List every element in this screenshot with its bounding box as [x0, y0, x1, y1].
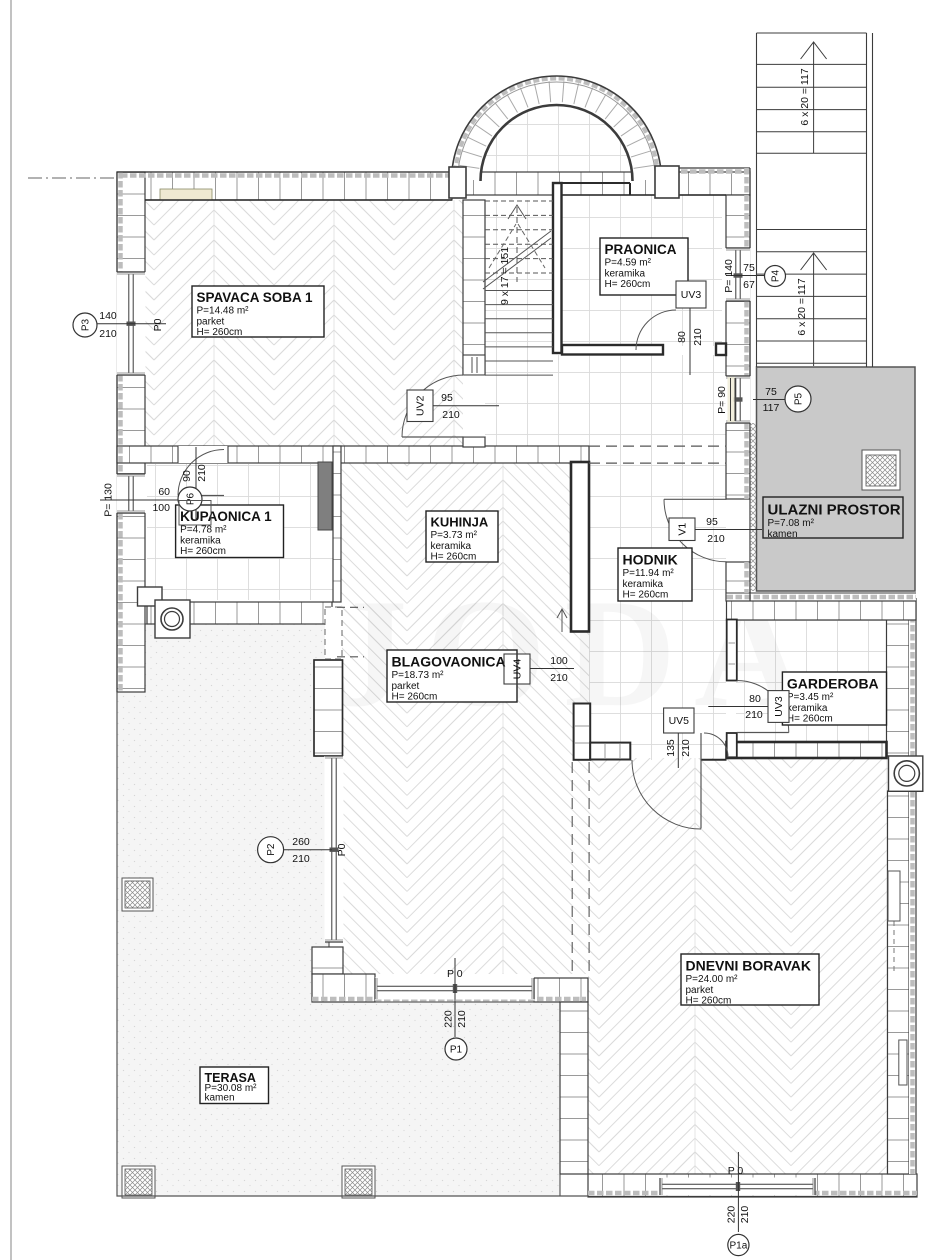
- svg-text:P=18.73 m²: P=18.73 m²: [392, 670, 445, 681]
- svg-text:6 x 20 = 117: 6 x 20 = 117: [796, 278, 808, 335]
- svg-text:P3: P3: [81, 318, 92, 331]
- svg-text:parket: parket: [197, 316, 225, 327]
- svg-text:keramika: keramika: [605, 268, 646, 279]
- svg-text:95: 95: [706, 516, 718, 528]
- svg-text:75: 75: [765, 386, 777, 398]
- svg-text:P=3.45 m²: P=3.45 m²: [787, 692, 834, 703]
- svg-text:67: 67: [743, 279, 755, 291]
- svg-text:SPAVACA SOBA 1: SPAVACA SOBA 1: [197, 290, 314, 305]
- svg-text:P=4.59 m²: P=4.59 m²: [605, 258, 652, 269]
- svg-text:P2: P2: [266, 843, 277, 856]
- svg-text:kamen: kamen: [768, 529, 798, 540]
- svg-text:9 x 17 = 151: 9 x 17 = 151: [499, 247, 511, 305]
- svg-text:UV5: UV5: [669, 715, 690, 727]
- svg-text:P= 130: P= 130: [103, 483, 115, 517]
- svg-text:keramika: keramika: [623, 579, 664, 590]
- svg-text:H= 260cm: H= 260cm: [623, 590, 669, 601]
- svg-text:210: 210: [680, 739, 692, 757]
- svg-text:UV3: UV3: [681, 289, 702, 301]
- svg-text:BLAGOVAONICA: BLAGOVAONICA: [392, 654, 506, 670]
- svg-text:H= 260cm: H= 260cm: [197, 327, 243, 338]
- svg-text:6 x 20 = 117: 6 x 20 = 117: [799, 68, 811, 125]
- svg-text:210: 210: [292, 853, 310, 865]
- svg-text:kamen: kamen: [205, 1092, 235, 1103]
- svg-text:P5: P5: [794, 392, 805, 405]
- svg-text:260: 260: [292, 836, 310, 848]
- svg-text:parket: parket: [686, 985, 714, 996]
- svg-text:100: 100: [152, 502, 170, 514]
- svg-text:P=14.48 m²: P=14.48 m²: [197, 306, 250, 317]
- svg-text:DNEVNI BORAVAK: DNEVNI BORAVAK: [686, 958, 812, 974]
- svg-text:P= 140: P= 140: [723, 259, 735, 293]
- svg-text:H= 260cm: H= 260cm: [787, 714, 833, 725]
- svg-text:UV3: UV3: [773, 696, 785, 717]
- svg-text:ULAZNI PROSTOR: ULAZNI PROSTOR: [768, 502, 901, 519]
- svg-text:P 0: P 0: [728, 1165, 744, 1177]
- svg-text:P=11.94 m²: P=11.94 m²: [623, 568, 675, 579]
- svg-text:P1a: P1a: [730, 1241, 748, 1252]
- svg-text:H= 260cm: H= 260cm: [686, 996, 732, 1007]
- svg-text:KUPAONICA 1: KUPAONICA 1: [180, 509, 272, 524]
- svg-text:60: 60: [158, 486, 170, 498]
- svg-text:90: 90: [181, 470, 193, 482]
- svg-text:V1: V1: [677, 523, 689, 536]
- svg-text:210: 210: [442, 409, 460, 421]
- svg-text:H= 260cm: H= 260cm: [180, 546, 226, 557]
- svg-text:P1: P1: [450, 1045, 463, 1056]
- svg-text:210: 210: [707, 533, 725, 545]
- svg-text:PRAONICA: PRAONICA: [605, 242, 677, 257]
- svg-text:P=24.00 m²: P=24.00 m²: [686, 974, 739, 985]
- svg-text:95: 95: [441, 392, 453, 404]
- svg-text:H= 260cm: H= 260cm: [392, 692, 438, 703]
- svg-text:P4: P4: [771, 269, 782, 282]
- svg-text:keramika: keramika: [787, 703, 828, 714]
- svg-text:210: 210: [456, 1010, 468, 1028]
- svg-text:220: 220: [726, 1206, 738, 1224]
- svg-text:H= 260cm: H= 260cm: [431, 552, 477, 563]
- svg-text:P=4.78 m²: P=4.78 m²: [180, 525, 227, 536]
- svg-text:210: 210: [550, 672, 568, 684]
- svg-text:P6: P6: [186, 492, 197, 505]
- svg-text:80: 80: [749, 693, 761, 705]
- svg-text:210: 210: [745, 709, 763, 721]
- svg-text:135: 135: [665, 739, 677, 757]
- svg-text:parket: parket: [392, 681, 420, 692]
- svg-text:HODNIK: HODNIK: [623, 552, 678, 568]
- svg-text:P0: P0: [336, 843, 348, 856]
- svg-text:220: 220: [443, 1010, 455, 1028]
- svg-text:P= 90: P= 90: [716, 386, 728, 414]
- svg-text:80: 80: [676, 331, 688, 343]
- svg-text:P=3.73 m²: P=3.73 m²: [431, 530, 478, 541]
- svg-text:KUHINJA: KUHINJA: [431, 515, 489, 530]
- svg-text:keramika: keramika: [180, 535, 221, 546]
- svg-text:UV4: UV4: [512, 659, 524, 680]
- svg-text:210: 210: [99, 328, 117, 340]
- svg-text:P0: P0: [152, 318, 164, 331]
- svg-text:210: 210: [692, 328, 704, 346]
- svg-text:75: 75: [743, 262, 755, 274]
- svg-text:H= 260cm: H= 260cm: [605, 279, 651, 290]
- svg-text:keramika: keramika: [431, 541, 472, 552]
- svg-text:210: 210: [739, 1206, 751, 1224]
- svg-text:117: 117: [763, 402, 780, 414]
- svg-text:100: 100: [550, 655, 568, 667]
- svg-text:P=7.08 m²: P=7.08 m²: [768, 518, 815, 529]
- svg-text:140: 140: [99, 310, 117, 322]
- svg-text:GARDEROBA: GARDEROBA: [787, 676, 879, 692]
- svg-text:210: 210: [196, 464, 208, 482]
- svg-text:UV2: UV2: [415, 395, 427, 416]
